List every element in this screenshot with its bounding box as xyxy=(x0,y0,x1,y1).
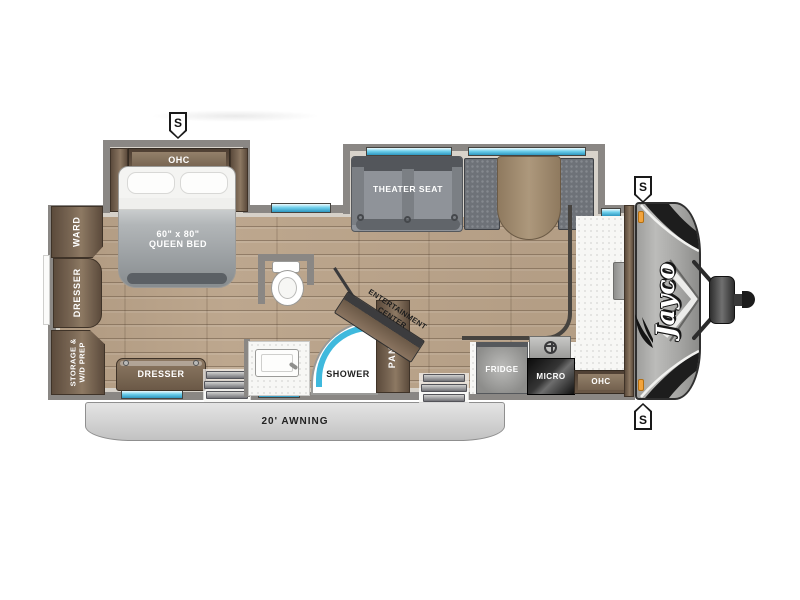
fridge: FRIDGE xyxy=(476,342,528,394)
awning-label: 20' AWNING xyxy=(261,416,328,428)
window-rear-left xyxy=(43,255,50,325)
dresser-front-label: DRESSER xyxy=(137,369,184,379)
awning-slab: 20' AWNING xyxy=(85,402,505,441)
speaker-marker-front-bottom: S xyxy=(634,403,652,430)
cupholder-right xyxy=(451,214,458,221)
storage-wd-prep: STORAGE & W/D PREP xyxy=(51,330,105,395)
jayco-logo-text: Jayco xyxy=(651,263,680,337)
bed-foot-bar xyxy=(127,273,227,284)
speaker-letter: S xyxy=(639,413,647,427)
front-interior-wall xyxy=(624,205,634,397)
wardrobe-label: WARD xyxy=(71,217,82,248)
dresser-handle-left xyxy=(123,360,129,366)
queen-bed: 60" x 80" QUEEN BED xyxy=(118,166,236,288)
vanity-sink xyxy=(255,349,299,377)
bedroom-ohc-label: OHC xyxy=(168,155,190,165)
cupholder-left xyxy=(357,214,364,221)
jayco-logo: Jayco xyxy=(645,245,685,355)
theater-seat: THEATER SEAT xyxy=(351,156,463,232)
toilet-wall-top xyxy=(258,254,314,261)
fridge-label: FRIDGE xyxy=(485,365,518,374)
bed-size: 60" x 80" xyxy=(119,229,236,239)
wardrobe: WARD xyxy=(51,206,103,258)
bath-vanity xyxy=(248,341,310,396)
burner-icon xyxy=(544,341,557,354)
marker-light-bottom xyxy=(638,379,644,391)
microwave: MICRO xyxy=(527,358,575,395)
marker-light-top xyxy=(638,211,644,223)
bed-label: 60" x 80" QUEEN BED xyxy=(119,229,236,250)
storage-label-1: STORAGE & xyxy=(69,338,78,386)
shower-label: SHOWER xyxy=(319,369,377,379)
window-slide-left xyxy=(366,147,452,156)
microwave-label: MICRO xyxy=(536,372,565,381)
kitchen-ohc-label: OHC xyxy=(591,377,610,386)
floorplan-canvas: 20' AWNING OHC 60" x 80" QUEEN BED WARD … xyxy=(0,0,800,600)
theater-seat-label: THEATER SEAT xyxy=(352,185,463,195)
toilet-bowl xyxy=(271,270,304,306)
floor-counter-edge xyxy=(462,205,572,340)
dresser-front: DRESSER xyxy=(116,358,206,391)
speaker-letter: S xyxy=(174,116,182,130)
speaker-marker-bedroom: S xyxy=(169,112,187,139)
cooktop xyxy=(529,336,571,359)
cupholder-center xyxy=(404,216,411,223)
pillow-left xyxy=(127,172,175,194)
dresser-side-label: DRESSER xyxy=(72,268,83,317)
window-mid-wall xyxy=(271,203,331,213)
dresser-front-top xyxy=(120,361,202,366)
bed-name: QUEEN BED xyxy=(119,239,236,249)
speaker-letter: S xyxy=(639,180,647,194)
dresser-handle-right xyxy=(193,360,199,366)
storage-label-2: W/D PREP xyxy=(78,338,87,386)
toilet-wall-right xyxy=(307,261,314,285)
pillow-right xyxy=(180,172,228,194)
window-slide-right xyxy=(468,147,586,156)
speaker-marker-front-top: S xyxy=(634,176,652,203)
kitchen-ohc-cabinet: OHC xyxy=(574,370,628,394)
sheet-fold xyxy=(119,198,236,210)
window-bottom-dresser xyxy=(121,390,183,399)
entry-steps-2 xyxy=(419,373,469,403)
toilet-wall-left xyxy=(258,254,265,304)
jayco-bird-icon xyxy=(634,313,654,349)
propane-cover xyxy=(709,276,735,324)
dresser-side: DRESSER xyxy=(53,258,102,328)
